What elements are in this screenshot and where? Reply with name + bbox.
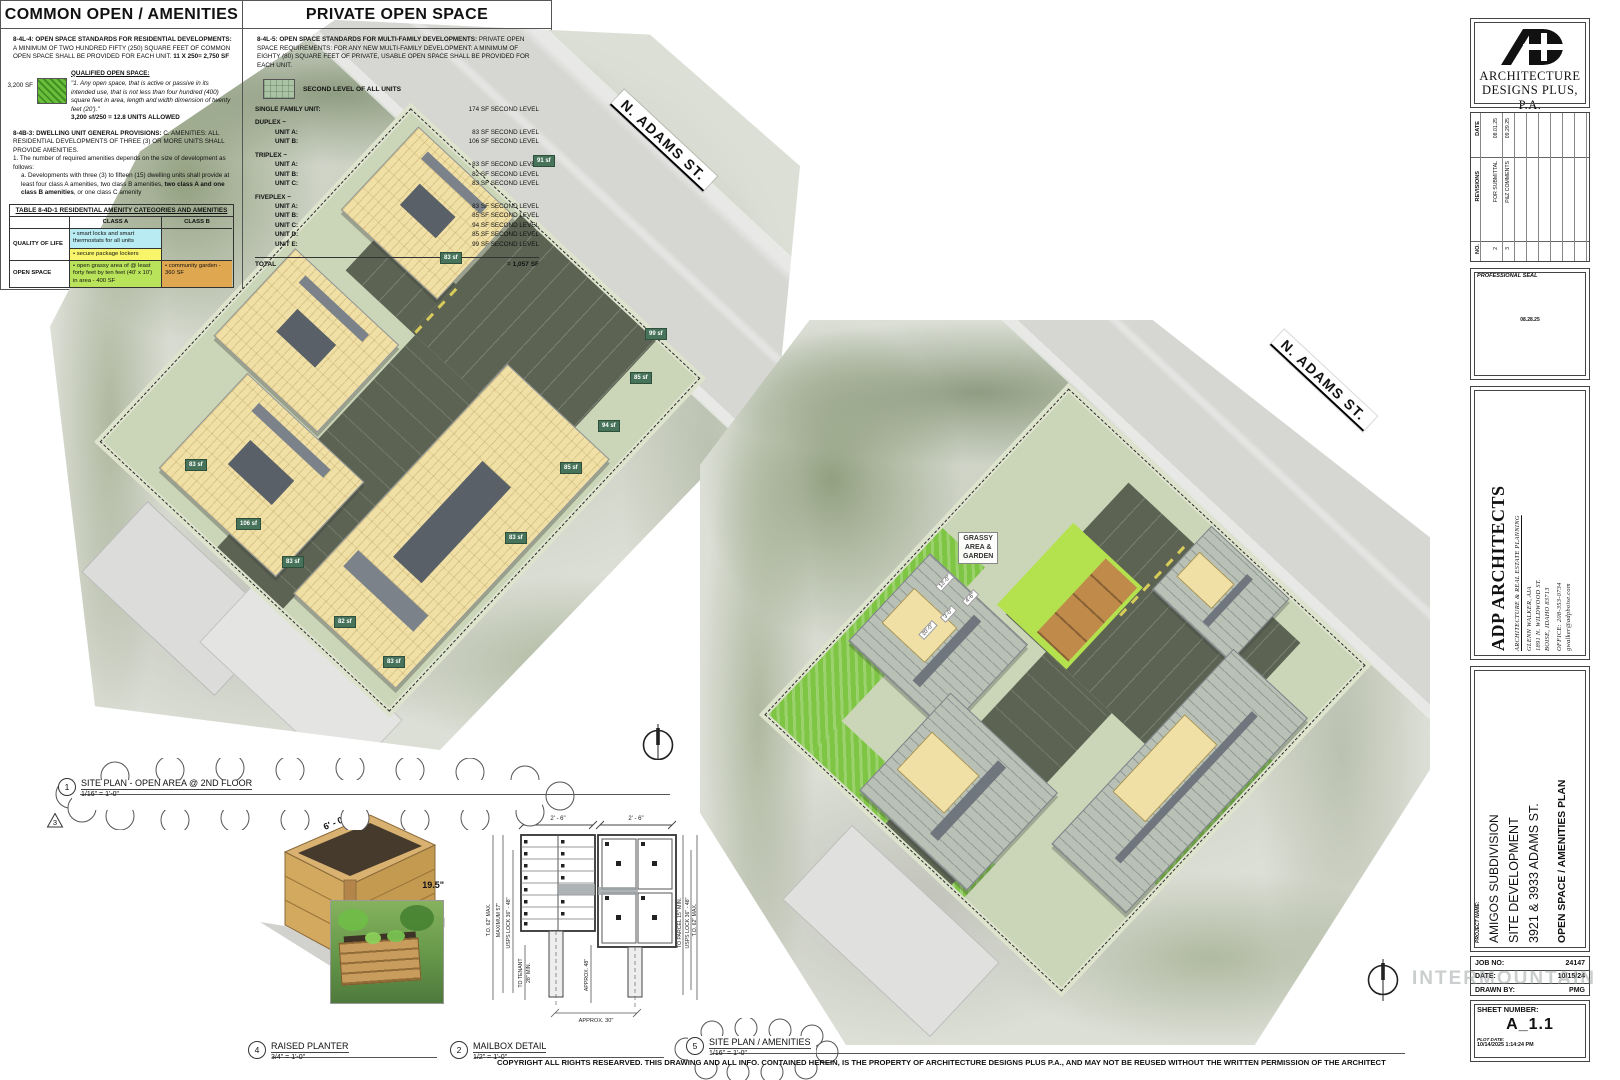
qualified-heading: QUALIFIED OPEN SPACE: (71, 70, 234, 79)
firm-address1: 1891 N. WILDWOOD ST. (1535, 395, 1542, 651)
mailbox-label-l5: 28" MIN. (526, 963, 532, 983)
open-space-sf-chip: 83 sf (383, 656, 405, 668)
street-name-label: N. ADAMS ST. (1270, 330, 1377, 432)
qualified-open-space-swatch (37, 78, 67, 104)
callout-number: 1 (58, 778, 76, 796)
private-open-space-list: SINGLE FAMILY UNIT:174 SF SECOND LEVEL D… (243, 105, 551, 268)
copyright-notice: COPYRIGHT ALL RIGHTS RESEARVED. THIS DRA… (497, 1058, 1427, 1067)
revision-desc: FOR SUBMITTAL (1493, 161, 1499, 202)
drawn-by: PMG (1569, 987, 1585, 994)
seal-date: 08.28.25 (1520, 317, 1539, 323)
mailbox-label-r3: T.O. 62" MAX. (692, 904, 698, 937)
mailbox-label-l3: USPS LOCK 36" - 48" (506, 897, 512, 948)
qualified-quote: "1. Any open space, that is active or pa… (71, 80, 230, 113)
code-ref: 8-4L-4: OPEN SPACE STANDARDS FOR RESIDEN… (13, 36, 232, 43)
open-space-sf-chip: 106 sf (236, 518, 261, 530)
mailbox-label-l4: TO TENANT (518, 958, 524, 988)
sheet-title: OPEN SPACE / AMENITIES PLAN (1557, 675, 1568, 943)
mailbox-label-bottom: APPROX. 30" (579, 1018, 614, 1024)
open-space-sf-chip: 83 sf (282, 556, 304, 568)
mailbox-label-r1: TO PARCEL 15" MIN. (677, 898, 683, 948)
logo-line2: DESIGNS PLUS, P.A. (1471, 83, 1589, 112)
open-space-sf-chip: 91 sf (533, 155, 555, 167)
project-line2: SITE DEVELOPMENT (1507, 675, 1521, 943)
open-space-sf-chip: 83 sf (440, 252, 462, 264)
grassy-area-label: GRASSY AREA & GARDEN (958, 532, 998, 564)
firm-phone: OFFICE: 208-353-0734 (1556, 395, 1563, 651)
job-info-table: JOB NO:24147 DATE:10/15/24 DRAWN BY:PMG (1470, 956, 1590, 996)
mailbox-detail: 2' - 6" 2' - 6" (445, 795, 700, 1045)
open-space-sf-chip: 94 sf (598, 420, 620, 432)
project-name-label: PROJECT NAME: (1475, 675, 1481, 943)
open-space-sf-chip: 82 sf (334, 616, 356, 628)
north-arrow-icon (640, 720, 676, 760)
open-space-sf-chip: 83 sf (505, 532, 527, 544)
mailbox-label-l1: T.O. 62" MAX. (486, 904, 492, 937)
mailbox-label-mid: APPROX. 48" (584, 959, 590, 991)
date-label: DATE: (1475, 973, 1496, 980)
legend-label: SECOND LEVEL OF ALL UNITS (303, 86, 401, 93)
total-row: TOTAL= 1,057 SF (255, 257, 539, 268)
open-space-sf-chip: 83 sf (185, 459, 207, 471)
qualified-sf: 3,200 SF (7, 82, 33, 91)
revision-no: 2 (1493, 247, 1499, 250)
callout-site-plan-amenities: 5 SITE PLAN / AMENITIES 1/16" = 1'-0" (686, 1037, 811, 1057)
sheet-number: A_1.1 (1477, 1016, 1583, 1034)
firm-email: gwalker@adpboise.com (1565, 395, 1572, 651)
project-name-box: PROJECT NAME: AMIGOS SUBDIVISION SITE DE… (1470, 666, 1590, 952)
firm-info-box: ADP ARCHITECTS ARCHITECTURE & REAL ESTAT… (1470, 386, 1590, 660)
open-space-tables: COMMON OPEN / AMENITIES 8-4L-4: OPEN SPA… (0, 0, 552, 290)
private-open-title: PRIVATE OPEN SPACE (243, 1, 551, 29)
callout-site-plan-1: 1 SITE PLAN - OPEN AREA @ 2ND FLOOR 1/16… (58, 778, 252, 798)
amenity-table: TABLE 8-4D-1 RESIDENTIAL AMENITY CATEGOR… (9, 204, 234, 289)
revision-date: 09.29.25 (1505, 118, 1511, 138)
drawing-sheet: { "street": { "name": "N. ADAMS ST." }, … (0, 0, 1620, 1080)
revision-desc: P&Z COMMENTS (1505, 161, 1511, 203)
firm-contact: GLENN WALKER, AIA (1526, 395, 1533, 651)
open-space-sf-chip: 99 sf (645, 328, 667, 340)
mailbox-dim-top-right: 2' - 6" (628, 816, 643, 822)
second-level-swatch (263, 79, 295, 99)
revision-date: 08.01.25 (1493, 118, 1499, 138)
callout-raised-planter: 4 RAISED PLANTER 3/4" = 1'-0" (248, 1041, 349, 1061)
revision-no: 3 (1505, 247, 1511, 250)
callout-rule (712, 1053, 1405, 1054)
planter-dim-height: 19.5" (422, 880, 444, 890)
common-open-amenities-panel: COMMON OPEN / AMENITIES 8-4L-4: OPEN SPA… (1, 1, 243, 289)
private-open-space-panel: PRIVATE OPEN SPACE 8-4L-5: OPEN SPACE ST… (243, 1, 551, 289)
mailbox-label-r2: USPS LOCK 36" - 48" (685, 897, 691, 948)
revision-triangle-marker: 3 (46, 812, 64, 829)
north-arrow-icon (1365, 955, 1401, 1005)
svg-text:3: 3 (53, 818, 57, 827)
common-open-title: COMMON OPEN / AMENITIES (1, 1, 242, 29)
firm-address2: BOISE, IDAHO 83713 (1544, 395, 1551, 651)
firm-logo-box: ARCHITECTURE DESIGNS PLUS, P.A. (1470, 18, 1590, 108)
job-no-label: JOB NO: (1475, 960, 1504, 967)
mailbox-label-l2: MAXIMUM 57" (496, 903, 502, 937)
professional-seal-box: PROFESSIONAL SEAL 08.28.25 (1470, 268, 1590, 380)
revision-table: DATE REVISIONS NO. 08.01.25 FOR SUBMITTA… (1470, 112, 1590, 262)
project-line3: 3921 & 3933 ADAMS ST. (1527, 675, 1541, 943)
project-line1: AMIGOS SUBDIVISION (1487, 675, 1501, 943)
adp-logo-icon (1471, 25, 1591, 69)
sheet-number-label: SHEET NUMBER: (1477, 1005, 1583, 1014)
job-no: 24147 (1566, 960, 1585, 967)
site-plan-amenities: GRASSY AREA & GARDEN 13'-0" 4'-6" 3'-0" … (700, 310, 1430, 1045)
open-space-sf-chip: 85 sf (560, 462, 582, 474)
planter-photo (330, 900, 444, 1004)
date-value: 10/15/24 (1558, 973, 1585, 980)
drawn-by-label: DRAWN BY: (1475, 987, 1515, 994)
sheet-number-box: SHEET NUMBER: A_1.1 PLOT DATE: 10/14/202… (1470, 1000, 1590, 1062)
firm-name: ADP ARCHITECTS (1488, 395, 1509, 651)
open-space-sf-chip: 85 sf (630, 372, 652, 384)
firm-tagline: ARCHITECTURE & REAL ESTATE PLANNING (1514, 395, 1521, 651)
plot-date: 10/14/2025 1:14:24 PM (1477, 1042, 1583, 1048)
logo-line1: ARCHITECTURE (1471, 69, 1589, 83)
